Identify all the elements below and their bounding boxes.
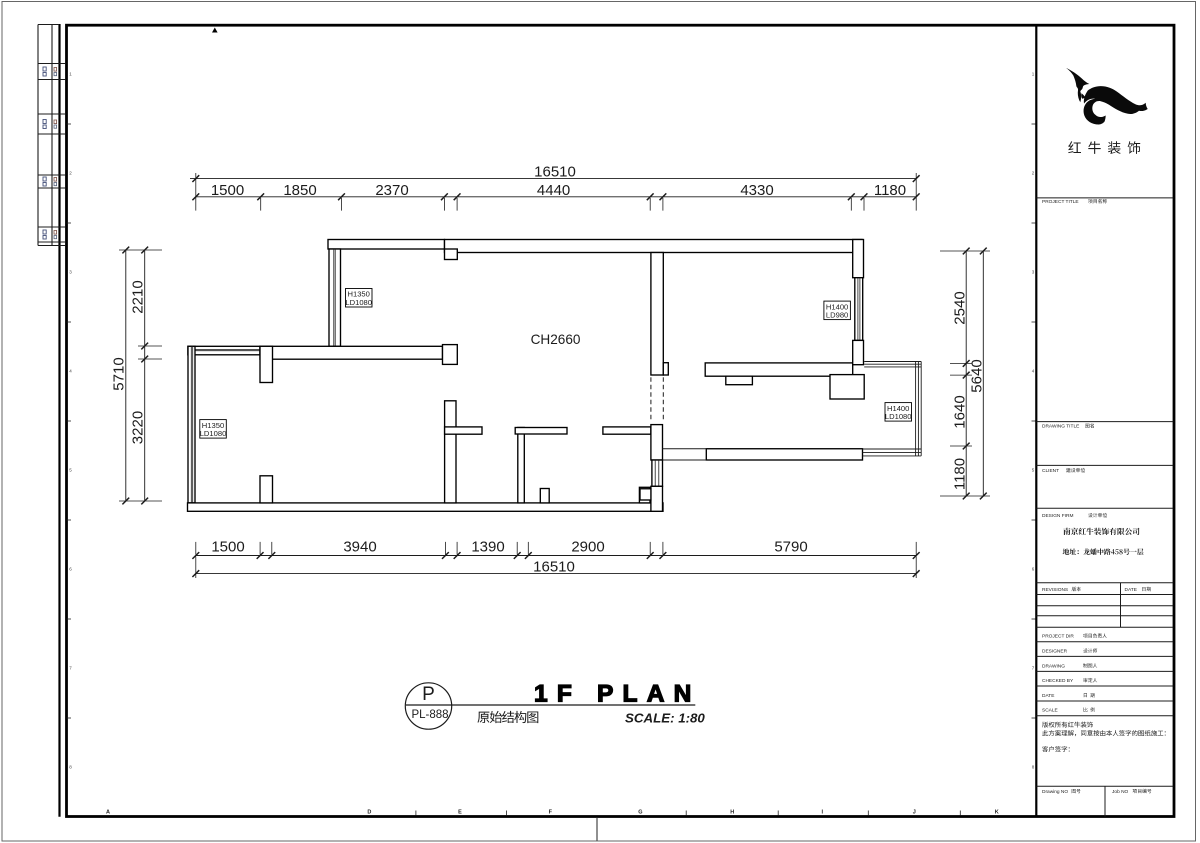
svg-text:1180: 1180 [952, 458, 969, 490]
svg-text:G: G [638, 810, 642, 816]
svg-text:5790: 5790 [774, 539, 807, 556]
svg-text:2: 2 [69, 171, 72, 176]
svg-text:DESIGN FIRM: DESIGN FIRM [1042, 513, 1073, 519]
svg-text:DRAWING: DRAWING [1042, 663, 1065, 669]
svg-text:CHECKED BY: CHECKED BY [1042, 678, 1074, 684]
svg-text:H: H [730, 810, 734, 816]
svg-text:Drawing NO: Drawing NO [1042, 789, 1068, 795]
svg-text:3940: 3940 [343, 539, 376, 556]
svg-text:DRAWING TITLE: DRAWING TITLE [1042, 424, 1079, 430]
svg-text:LD1080: LD1080 [345, 298, 372, 307]
svg-text:1F PLAN: 1F PLAN [534, 681, 701, 708]
svg-text:A: A [106, 810, 110, 816]
svg-text:DATE: DATE [1042, 693, 1054, 699]
svg-text:1: 1 [69, 72, 72, 77]
svg-text:CH2660: CH2660 [531, 332, 581, 347]
svg-text:3220: 3220 [130, 411, 147, 444]
svg-text:16510: 16510 [534, 163, 576, 180]
svg-text:2900: 2900 [571, 539, 604, 556]
svg-text:P: P [422, 684, 435, 705]
svg-text:5710: 5710 [111, 357, 128, 390]
svg-text:2210: 2210 [130, 280, 147, 313]
svg-text:PROJECT TITLE: PROJECT TITLE [1042, 199, 1079, 205]
svg-text:8: 8 [1032, 765, 1035, 770]
svg-text:4440: 4440 [537, 182, 570, 199]
svg-text:E: E [458, 810, 462, 816]
svg-text:LD1080: LD1080 [200, 429, 227, 438]
svg-text:8: 8 [69, 765, 72, 770]
svg-text:5640: 5640 [969, 359, 986, 392]
svg-text:1: 1 [1032, 72, 1035, 77]
svg-text:PROJECT DIR: PROJECT DIR [1042, 634, 1074, 640]
svg-text:2540: 2540 [952, 291, 969, 324]
svg-text:1640: 1640 [952, 395, 969, 428]
svg-text:5: 5 [1032, 468, 1035, 473]
svg-text:LD980: LD980 [826, 311, 848, 320]
svg-text:1850: 1850 [283, 182, 316, 199]
svg-text:F: F [549, 810, 553, 816]
svg-text:5: 5 [69, 468, 72, 473]
svg-text:7: 7 [69, 666, 72, 671]
svg-text:PL-888: PL-888 [411, 709, 448, 721]
svg-text:4330: 4330 [740, 182, 773, 199]
svg-text:1500: 1500 [211, 182, 244, 199]
svg-text:D: D [367, 810, 371, 816]
svg-text:16510: 16510 [533, 559, 575, 576]
svg-text:2: 2 [1032, 171, 1035, 176]
svg-text:I: I [822, 810, 824, 816]
svg-text:3: 3 [69, 270, 72, 275]
svg-text:SCALE: 1:80: SCALE: 1:80 [625, 711, 705, 726]
svg-text:DATE: DATE [1125, 587, 1137, 593]
svg-text:6: 6 [1032, 567, 1035, 572]
svg-text:Job NO: Job NO [1112, 789, 1129, 795]
svg-text:1390: 1390 [471, 539, 504, 556]
svg-text:K: K [995, 810, 999, 816]
svg-text:REVISIONS: REVISIONS [1042, 587, 1068, 593]
svg-text:3: 3 [1032, 270, 1035, 275]
svg-text:4: 4 [69, 369, 72, 374]
svg-text:J: J [913, 810, 916, 816]
svg-text:1180: 1180 [874, 182, 906, 199]
svg-text:SCALE: SCALE [1042, 708, 1058, 714]
svg-text:DESIGNER: DESIGNER [1042, 649, 1068, 655]
svg-text:6: 6 [69, 567, 72, 572]
svg-text:4: 4 [1032, 369, 1035, 374]
svg-text:7: 7 [1032, 666, 1035, 671]
svg-text:LD1080: LD1080 [885, 412, 912, 421]
svg-text:CLIENT: CLIENT [1042, 468, 1059, 474]
svg-text:1500: 1500 [211, 539, 244, 556]
svg-text:2370: 2370 [375, 182, 408, 199]
